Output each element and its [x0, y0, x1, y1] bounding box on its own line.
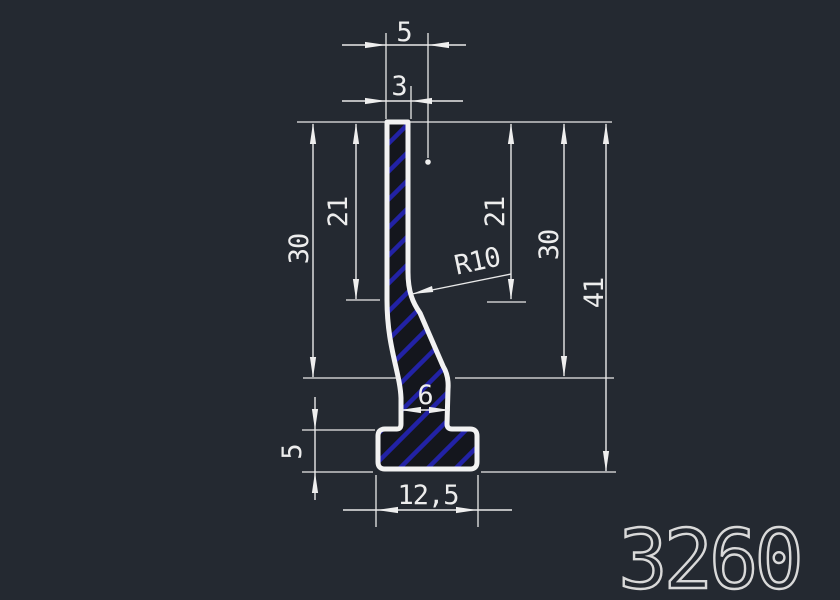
dim-top-wall: 3: [342, 71, 463, 104]
dim-label-top-wall: 3: [391, 71, 406, 102]
arrowhead-left: [411, 98, 432, 104]
cad-drawing-canvas: 5 3 21 30 5 21 30: [0, 0, 840, 600]
arrowhead-up: [310, 123, 316, 144]
dim-label-total-height: 41: [579, 278, 610, 309]
dim-total-height: 41: [579, 123, 610, 472]
arrowhead-leader: [412, 286, 433, 294]
arrowhead-up: [508, 123, 514, 144]
arrowhead-right: [365, 42, 386, 48]
dim-label-left-upper: 21: [323, 197, 354, 228]
technical-drawing: 5 3 21 30 5 21 30: [0, 0, 840, 600]
arrowhead-up: [561, 123, 567, 144]
dim-label-right-height: 30: [534, 230, 565, 261]
arrowhead-up: [603, 123, 609, 144]
profile-outline: [378, 122, 477, 469]
arrowhead-down: [353, 279, 359, 300]
arrowhead-down: [603, 451, 609, 472]
arrowhead-down: [310, 357, 316, 378]
dim-right-height: 30: [534, 123, 567, 377]
arrowhead-down: [508, 279, 514, 300]
dim-label-top-width: 5: [396, 17, 411, 48]
dim-left-upper-height: 21: [323, 123, 359, 300]
dim-label-neck-width: 6: [417, 380, 432, 411]
dim-label-left-height: 30: [284, 234, 315, 265]
reference-dot: [425, 159, 431, 165]
arrowhead-left: [428, 42, 449, 48]
dim-base-width: 12,5: [343, 480, 512, 513]
dim-top-width: 5: [342, 17, 466, 48]
dim-label-base-width: 12,5: [397, 480, 458, 511]
dim-left-height: 30: [284, 123, 316, 378]
dim-label-fillet-radius: R10: [452, 242, 503, 282]
arrowhead-down: [312, 409, 318, 430]
arrowhead-right: [365, 98, 386, 104]
arrowhead-up: [312, 472, 318, 493]
dim-base-thickness: 5: [277, 397, 318, 500]
arrowhead-right: [456, 507, 477, 513]
arrowhead-up: [353, 123, 359, 144]
dim-label-right-upper: 21: [480, 197, 511, 228]
arrowhead-down: [561, 356, 567, 377]
arrowhead-left: [377, 507, 398, 513]
part-number: 3260: [618, 513, 799, 600]
dim-label-base-thickness: 5: [277, 444, 308, 459]
leader-fillet-radius: R10: [412, 242, 511, 294]
